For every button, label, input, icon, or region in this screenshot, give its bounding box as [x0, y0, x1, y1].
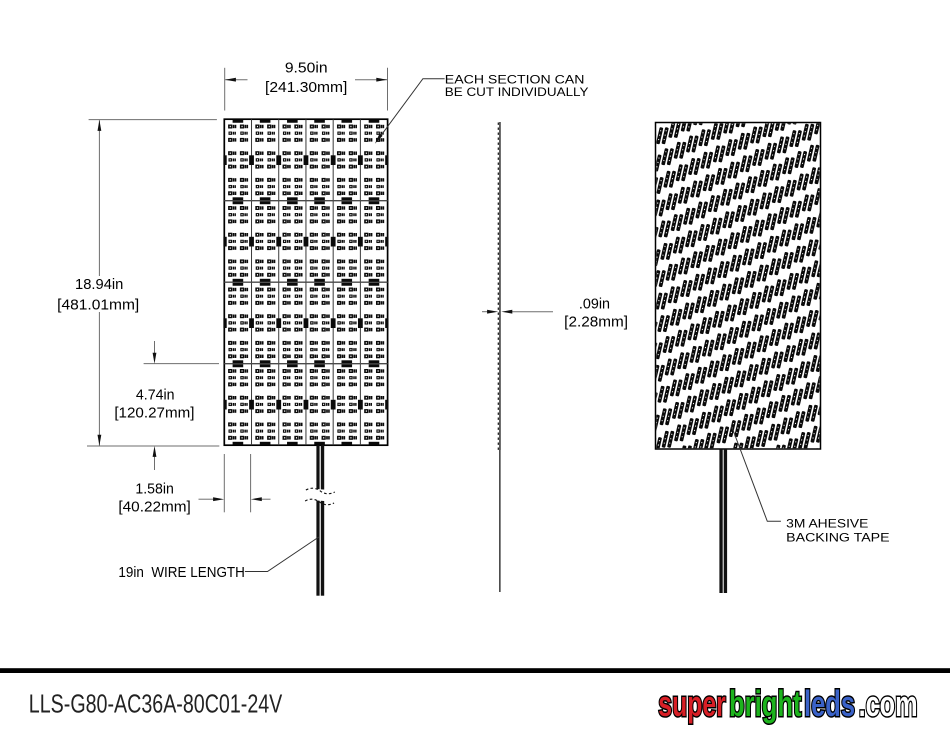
svg-text:bright: bright	[729, 683, 802, 724]
svg-text:.09in: .09in	[579, 297, 610, 313]
svg-text:3M AHESIVE: 3M AHESIVE	[786, 517, 868, 531]
svg-text:[120.27mm]: [120.27mm]	[114, 406, 194, 422]
svg-text:leds: leds	[804, 683, 855, 724]
svg-text:.com: .com	[859, 683, 918, 724]
svg-text:[481.01mm]: [481.01mm]	[57, 298, 139, 314]
svg-text:4.74in: 4.74in	[136, 388, 175, 404]
svg-text:LLS-G80-AC36A-80C01-24V: LLS-G80-AC36A-80C01-24V	[29, 689, 283, 719]
svg-text:9.50in: 9.50in	[285, 61, 328, 77]
svg-text:super: super	[658, 683, 726, 724]
svg-text:[40.22mm]: [40.22mm]	[118, 500, 190, 516]
svg-text:[2.28mm]: [2.28mm]	[564, 315, 628, 331]
svg-text:19in WIRE LENGTH: 19in WIRE LENGTH	[118, 565, 244, 581]
svg-text:BACKING TAPE: BACKING TAPE	[786, 531, 889, 545]
svg-text:[241.30mm]: [241.30mm]	[265, 80, 347, 96]
svg-text:18.94in: 18.94in	[75, 277, 123, 293]
svg-text:1.58in: 1.58in	[135, 482, 173, 498]
svg-text:BE CUT INDIVIDUALLY: BE CUT INDIVIDUALLY	[445, 85, 589, 99]
